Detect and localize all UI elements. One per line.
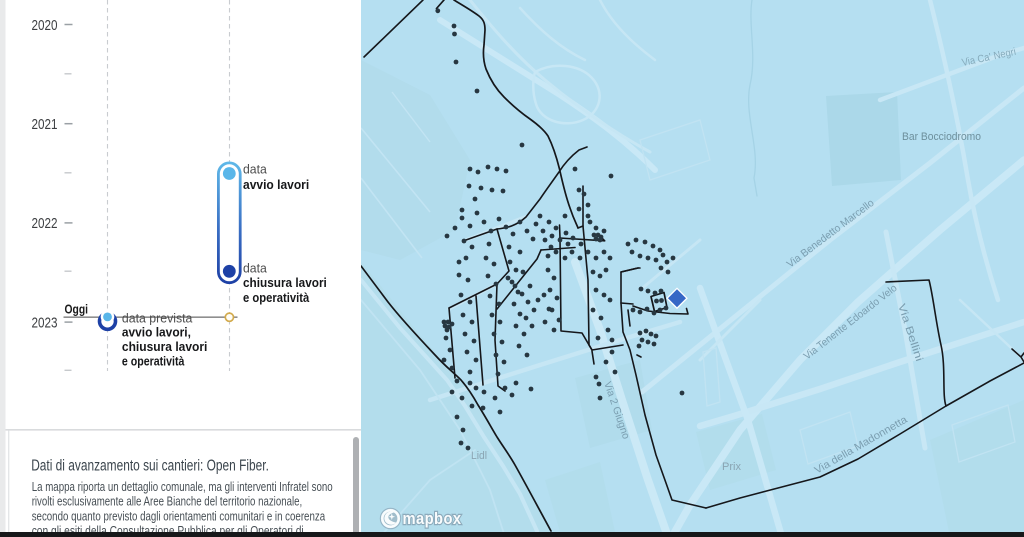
svg-text:2022: 2022 [32,215,58,232]
svg-text:data prevista: data prevista [122,310,193,325]
svg-text:Oggi: Oggi [65,302,89,317]
svg-text:avvio lavori,: avvio lavori, [122,325,191,340]
svg-text:avvio lavori: avvio lavori [243,177,309,192]
svg-text:e operatività: e operatività [243,290,310,305]
svg-text:2023: 2023 [32,314,58,331]
svg-text:chiusura lavori: chiusura lavori [122,339,207,354]
svg-text:Dati di avanzamento sui cantie: Dati di avanzamento sui cantieri: Open F… [31,457,269,474]
svg-text:2021: 2021 [32,116,58,133]
svg-text:e operatività: e operatività [122,354,185,369]
svg-text:chiusura lavori: chiusura lavori [243,275,327,290]
svg-text:data: data [243,261,268,276]
svg-text:mapbox: mapbox [403,509,462,528]
svg-text:secondo quanto previsto dagli: secondo quanto previsto dagli orientamen… [32,508,326,523]
svg-text:Bar Bocciodromo: Bar Bocciodromo [902,131,981,143]
svg-text:2020: 2020 [32,17,58,34]
svg-text:data: data [243,161,268,176]
svg-text:rivolti esclusivamente alle Ar: rivolti esclusivamente alle Aree Bianche… [32,494,303,509]
svg-text:Lidl: Lidl [471,450,487,462]
svg-text:La mappa riporta un dettaglio: La mappa riporta un dettaglio comunale, … [32,479,333,494]
svg-text:Prix: Prix [722,461,741,473]
